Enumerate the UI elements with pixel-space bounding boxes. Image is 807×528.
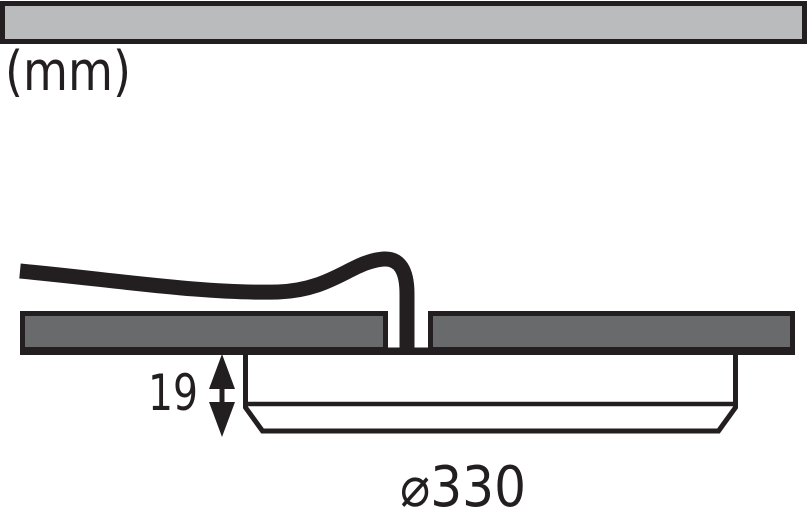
diagram-canvas: (mm) 19 ⌀330 <box>0 0 807 528</box>
depth-value-label: 19 <box>148 364 198 422</box>
diameter-value-label: ⌀330 <box>400 455 526 520</box>
ceiling-panel-right <box>431 314 793 350</box>
fixture-body <box>246 350 736 431</box>
ceiling-panel-left <box>23 314 386 350</box>
units-label: (mm) <box>5 40 131 103</box>
ceiling-bar <box>3 4 805 42</box>
dimension-diagram: (mm) 19 ⌀330 <box>0 0 807 528</box>
